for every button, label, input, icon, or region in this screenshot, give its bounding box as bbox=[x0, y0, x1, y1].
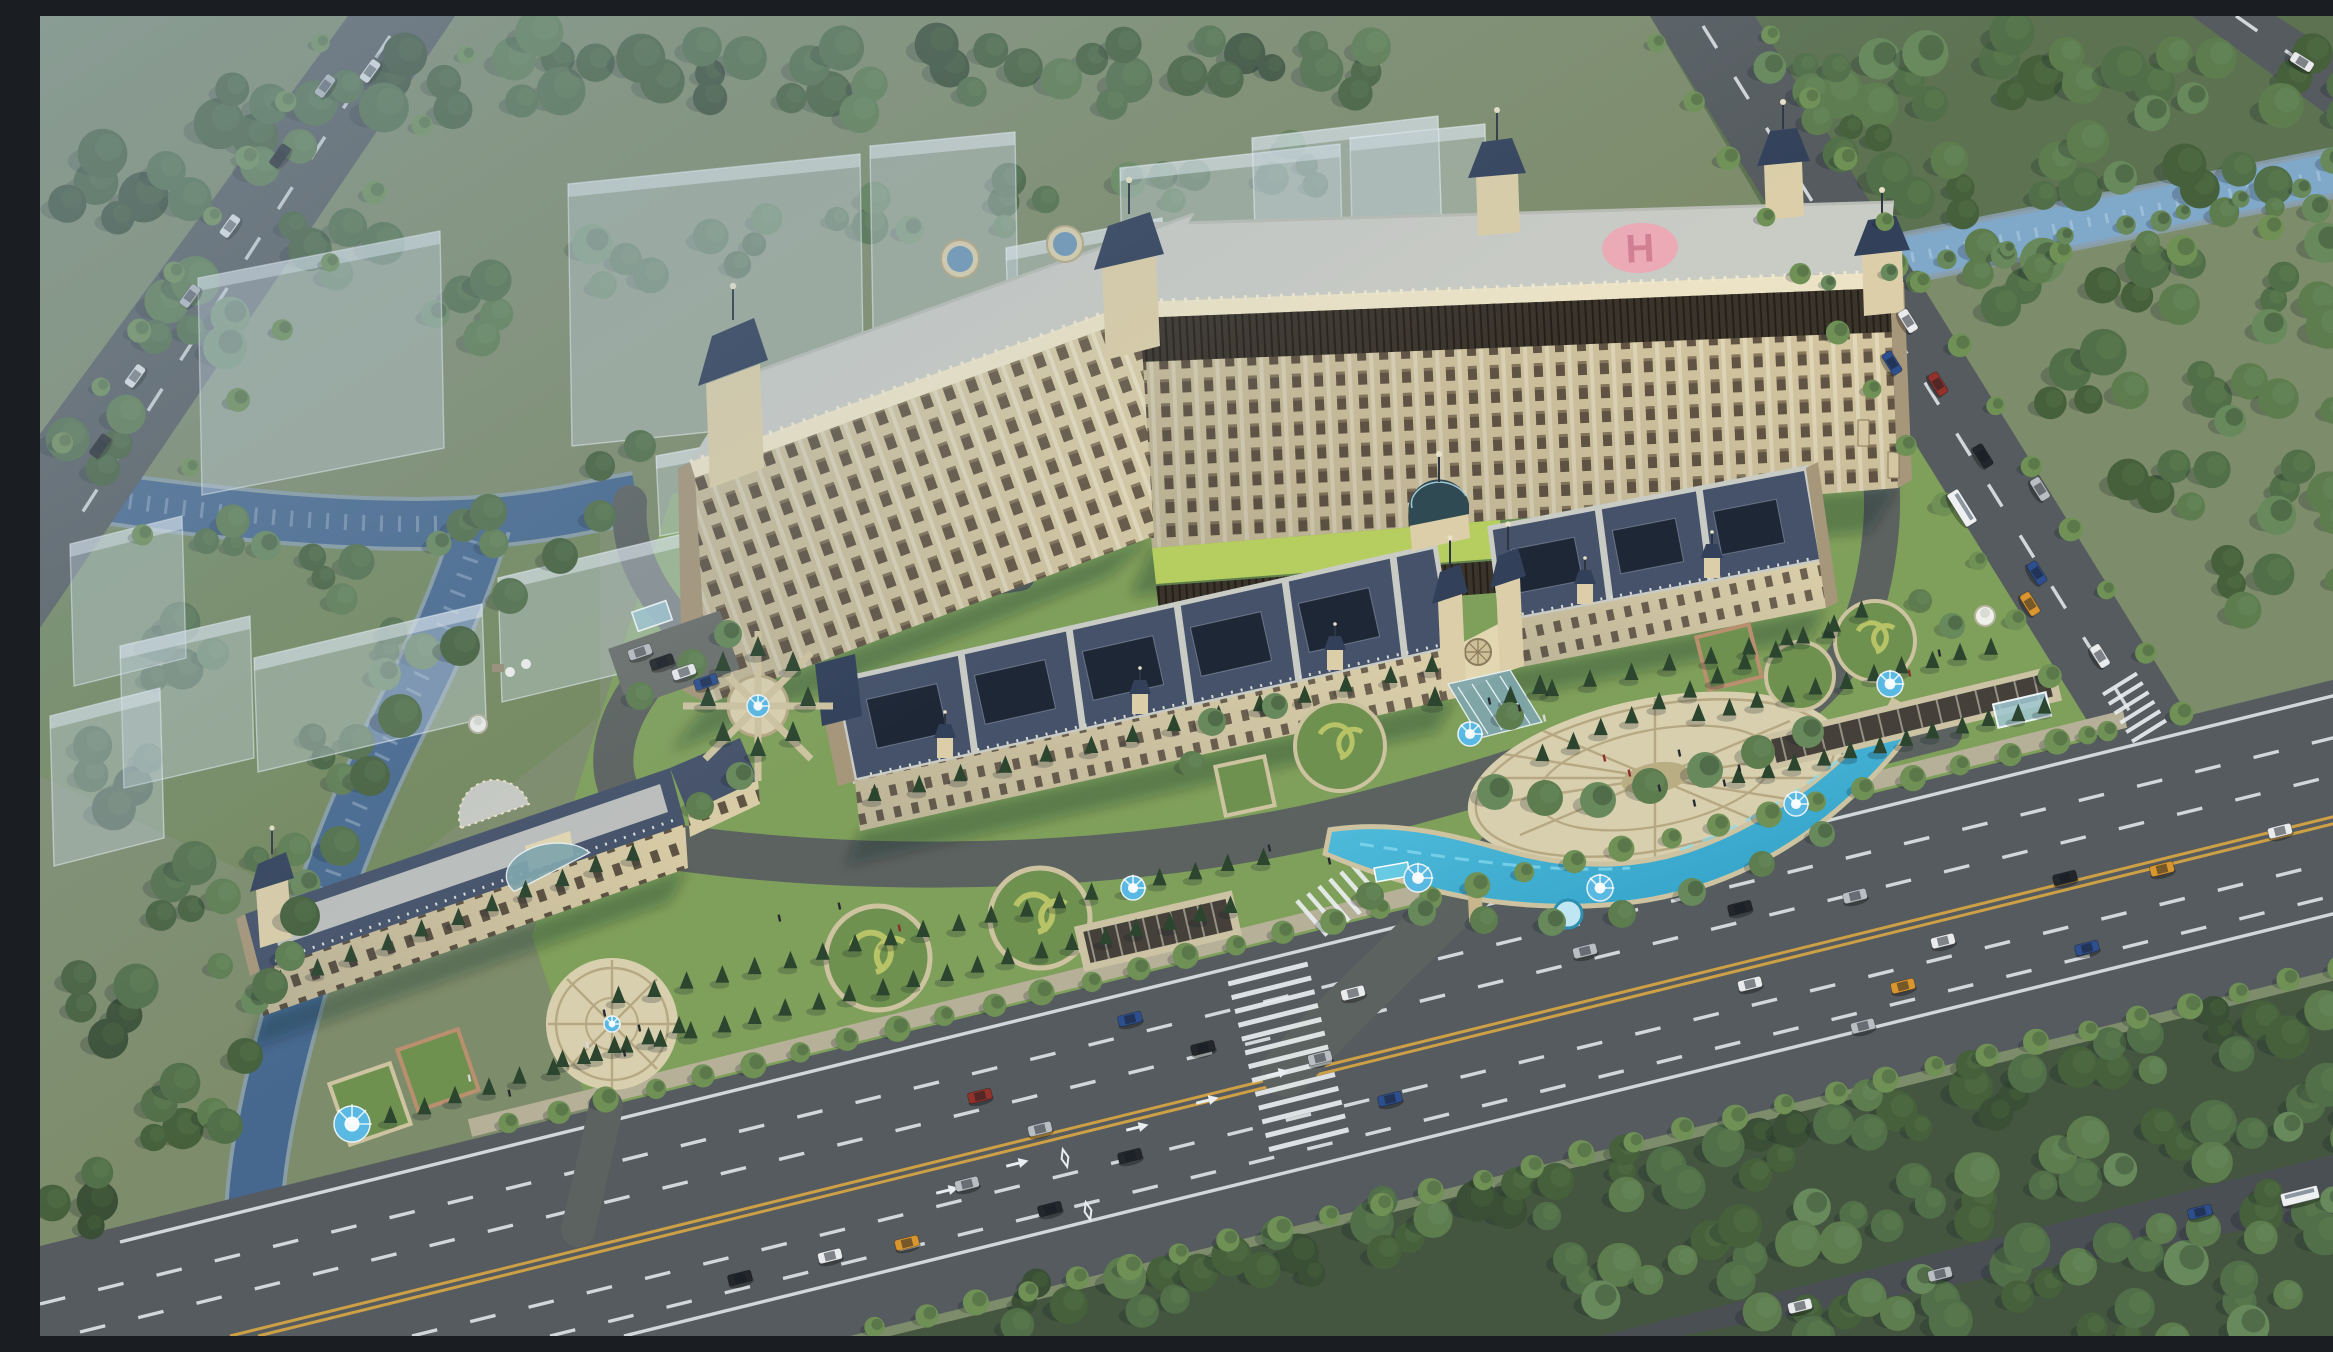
scene-canvas: H bbox=[40, 16, 2333, 1336]
atmospheric-haze bbox=[40, 16, 2333, 1336]
aerial-architectural-rendering: H bbox=[40, 16, 2333, 1336]
